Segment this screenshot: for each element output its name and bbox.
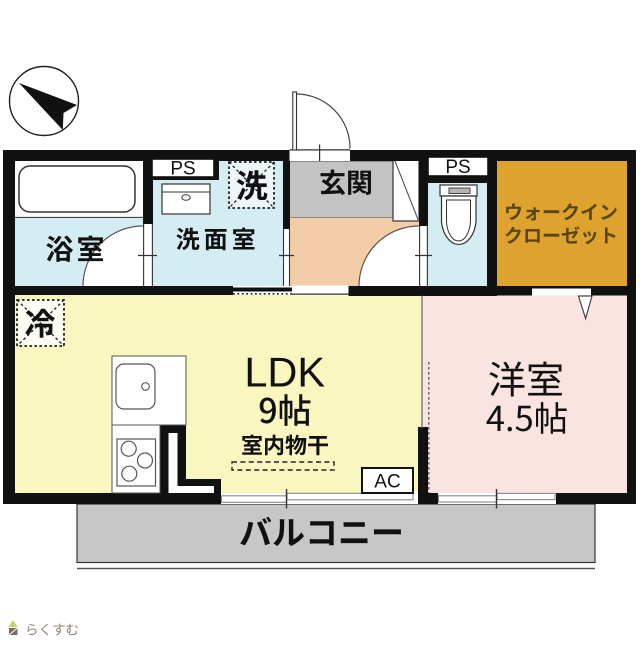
svg-text:PS: PS — [170, 159, 195, 180]
svg-text:LDK: LDK — [244, 349, 325, 396]
svg-text:AC: AC — [374, 472, 400, 493]
svg-text:PS: PS — [445, 157, 470, 178]
